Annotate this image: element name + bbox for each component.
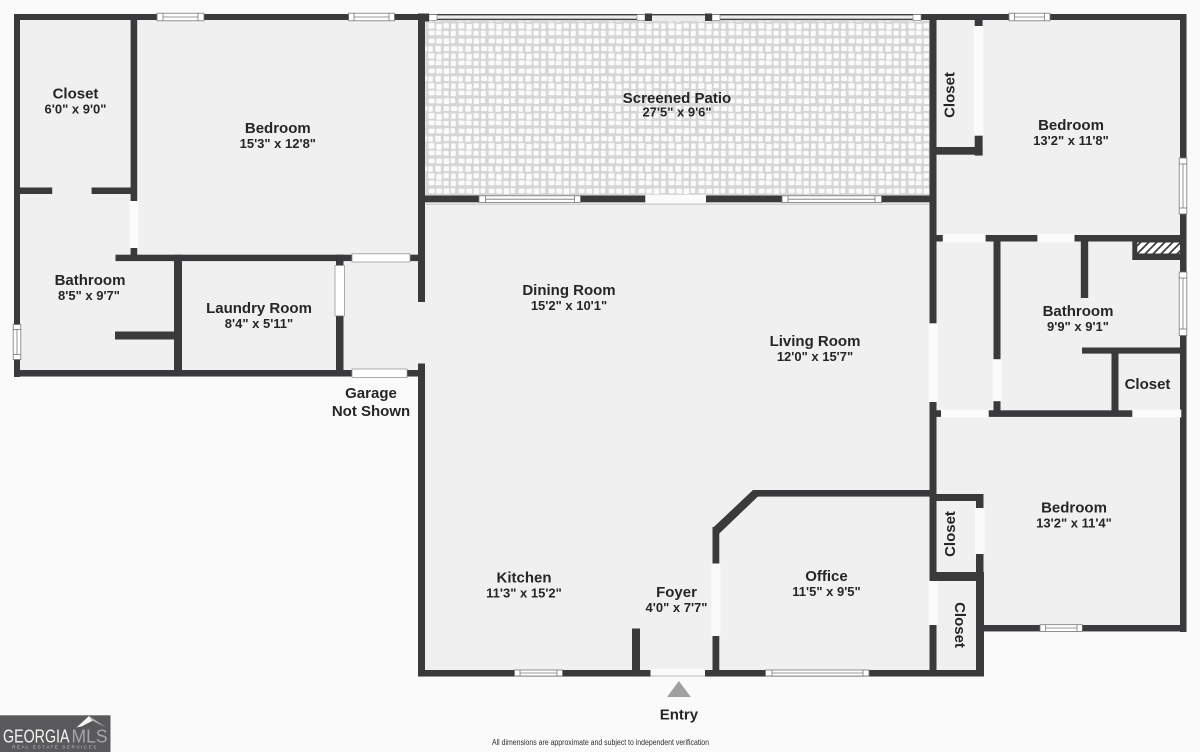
svg-text:Garage: Garage — [345, 385, 397, 402]
svg-text:11'5" x 9'5": 11'5" x 9'5" — [792, 584, 860, 599]
svg-text:6'0" x 9'0": 6'0" x 9'0" — [45, 102, 107, 117]
svg-text:MLS: MLS — [72, 726, 108, 746]
svg-text:Laundry Room: Laundry Room — [206, 300, 312, 317]
svg-text:Closet: Closet — [942, 511, 959, 557]
svg-text:All dimensions are approximate: All dimensions are approximate and subje… — [492, 738, 709, 747]
svg-text:Kitchen: Kitchen — [496, 570, 551, 587]
svg-text:15'2" x 10'1": 15'2" x 10'1" — [531, 298, 607, 313]
svg-text:REAL ESTATE SERVICES: REAL ESTATE SERVICES — [12, 744, 98, 749]
svg-text:Living Room: Living Room — [770, 333, 861, 350]
svg-text:Bathroom: Bathroom — [55, 272, 126, 289]
svg-text:Bathroom: Bathroom — [1043, 303, 1114, 320]
svg-text:15'3" x 12'8": 15'3" x 12'8" — [240, 136, 316, 151]
svg-text:9'9" x 9'1": 9'9" x 9'1" — [1047, 319, 1109, 334]
svg-text:13'2" x 11'8": 13'2" x 11'8" — [1033, 133, 1109, 148]
svg-text:8'5" x 9'7": 8'5" x 9'7" — [58, 288, 120, 303]
svg-text:11'3" x 15'2": 11'3" x 15'2" — [486, 586, 562, 601]
svg-text:Dining Room: Dining Room — [522, 282, 615, 299]
svg-text:4'0" x 7'7": 4'0" x 7'7" — [646, 600, 708, 615]
svg-text:Office: Office — [805, 568, 848, 585]
svg-text:Closet: Closet — [941, 72, 958, 118]
svg-text:Closet: Closet — [53, 86, 99, 103]
svg-text:Bedroom: Bedroom — [1041, 500, 1107, 517]
svg-text:Not Shown: Not Shown — [332, 403, 410, 420]
svg-text:Closet: Closet — [1125, 376, 1171, 393]
svg-text:Entry: Entry — [660, 707, 699, 724]
svg-text:Bedroom: Bedroom — [245, 120, 311, 137]
svg-text:Bedroom: Bedroom — [1038, 117, 1104, 134]
svg-text:12'0" x 15'7": 12'0" x 15'7" — [777, 349, 853, 364]
svg-text:13'2" x 11'4": 13'2" x 11'4" — [1036, 516, 1112, 531]
svg-text:Foyer: Foyer — [656, 584, 697, 601]
svg-text:27'5" x 9'6": 27'5" x 9'6" — [642, 105, 711, 120]
svg-text:8'4" x 5'11": 8'4" x 5'11" — [225, 316, 293, 331]
svg-text:GEORGIA: GEORGIA — [3, 726, 70, 746]
svg-text:Closet: Closet — [951, 602, 968, 648]
